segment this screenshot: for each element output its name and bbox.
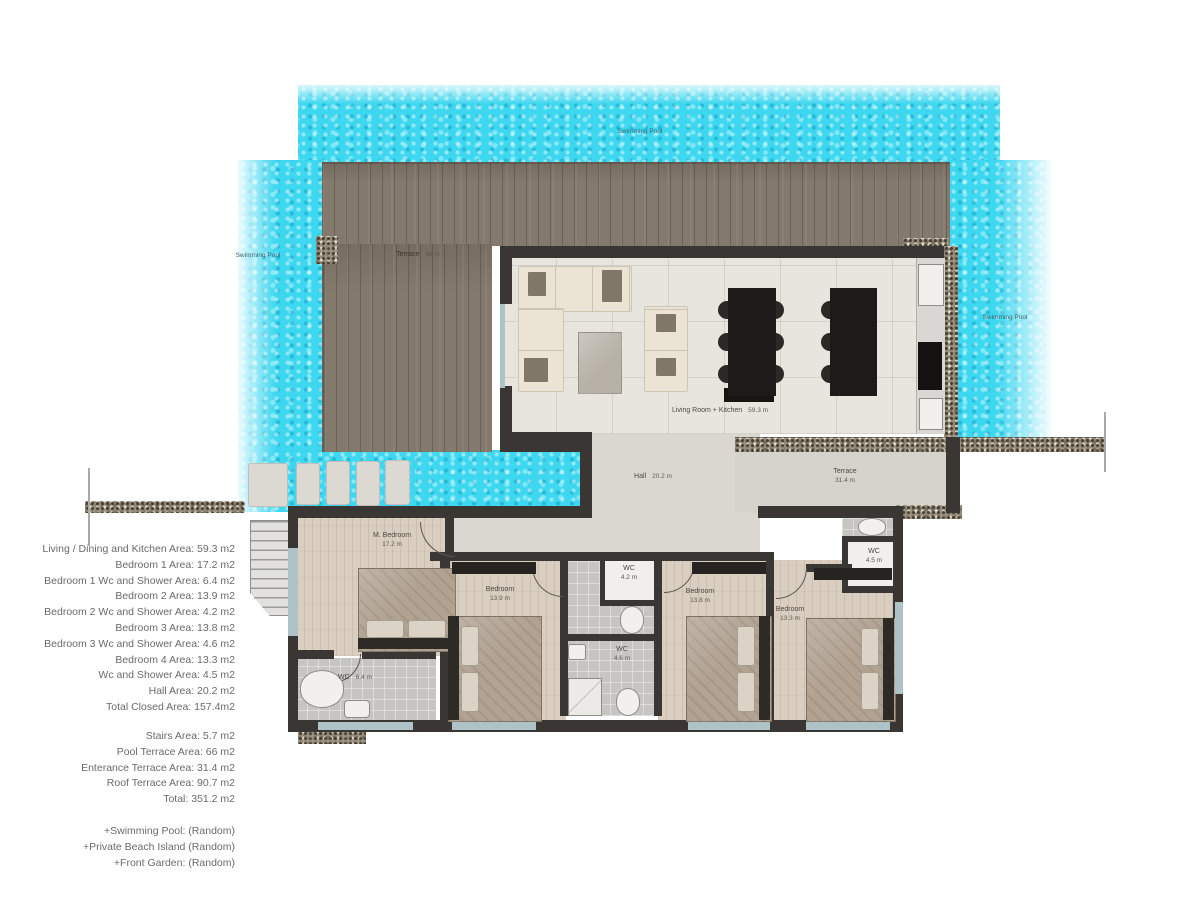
legend-line: Total Closed Area: 157.4m2 bbox=[30, 700, 235, 716]
room-name: WC bbox=[596, 646, 648, 655]
dining-table-2 bbox=[830, 288, 877, 396]
legend-line: Stairs Area: 5.7 m2 bbox=[30, 729, 235, 745]
floor-plan: Swimming Pool Swimming Pool Swimming Poo… bbox=[0, 0, 1200, 900]
label-living: Living Room + Kitchen59.3 m bbox=[640, 407, 800, 414]
toilet bbox=[620, 606, 644, 634]
wall-living-left-stub2 bbox=[500, 386, 512, 434]
room-area: 6.4 m bbox=[350, 674, 372, 681]
wall-wc-right-bottom bbox=[842, 586, 902, 593]
room-name: Hall bbox=[634, 473, 646, 480]
label-wc-master: WC6.4 m bbox=[320, 674, 390, 681]
room-name: Living Room + Kitchen bbox=[672, 407, 742, 414]
wall-wc-divider-h1 bbox=[600, 600, 658, 606]
room-name: Bedroom bbox=[748, 606, 832, 615]
legend-line: Bedroom 3 Wc and Shower Area: 4.6 m2 bbox=[30, 637, 235, 653]
wall-under-living bbox=[500, 432, 592, 452]
wall-living-left-stub bbox=[500, 246, 512, 304]
room-area: 4.5 m bbox=[848, 557, 900, 565]
label-bedroom4: Bedroom13.3 m bbox=[748, 606, 832, 623]
room-area: 59.3 m bbox=[742, 407, 768, 414]
wall-bedblock-top-right bbox=[758, 506, 903, 518]
legend-line: Hall Area: 20.2 m2 bbox=[30, 684, 235, 700]
closet-bedroom2 bbox=[452, 562, 536, 574]
pool-stepping-stone bbox=[385, 460, 410, 505]
pool-label-right: Swimming Pool bbox=[962, 314, 1048, 321]
kitchen-sink bbox=[918, 264, 944, 306]
legend-line: Pool Terrace Area: 66 m2 bbox=[30, 745, 235, 761]
sofa-shadow bbox=[602, 270, 622, 302]
sofa-shadow bbox=[528, 272, 546, 296]
room-name: WC bbox=[848, 548, 900, 557]
room-name: WC bbox=[338, 674, 350, 681]
wall-living-right-stone bbox=[944, 246, 958, 438]
room-area: 13.8 m bbox=[658, 597, 742, 605]
kitchen-stove bbox=[918, 342, 942, 390]
room-area: 4.2 m bbox=[604, 574, 654, 582]
wall-wc-divider-h2 bbox=[566, 634, 658, 641]
sink-wc-mid bbox=[568, 644, 586, 660]
label-wc-small: WC4.2 m bbox=[604, 565, 654, 582]
headboard bbox=[358, 638, 454, 649]
window-bottom bbox=[318, 722, 413, 730]
room-area: 20.2 m bbox=[646, 473, 672, 480]
legend-closed-areas: Living / Dining and Kitchen Area: 59.3 m… bbox=[30, 542, 235, 716]
pillow bbox=[861, 628, 879, 666]
room-area: 66 m bbox=[419, 251, 439, 258]
wall-bedblock-top-left bbox=[288, 506, 592, 518]
closet-bedroom3 bbox=[692, 562, 766, 574]
wall-wc-right-top bbox=[842, 536, 902, 542]
legend-line: Enterance Terrace Area: 31.4 m2 bbox=[30, 761, 235, 777]
deck-top bbox=[322, 162, 950, 246]
room-name: Bedroom bbox=[658, 588, 742, 597]
window-bottom bbox=[806, 722, 890, 730]
window-right bbox=[895, 602, 903, 694]
stone-wall-front bbox=[735, 437, 1105, 452]
stone-wall-patch bbox=[316, 236, 338, 264]
sofa-shadow bbox=[656, 314, 676, 332]
kitchen-appliance bbox=[919, 398, 943, 430]
legend-line: Bedroom 4 Area: 13.3 m2 bbox=[30, 653, 235, 669]
label-master-bedroom: M. Bedroom17.2 m bbox=[350, 532, 434, 549]
room-name: Bedroom bbox=[458, 586, 542, 595]
label-front-terrace: Terrace31.4 m bbox=[810, 468, 880, 485]
window-left bbox=[288, 548, 298, 636]
toilet bbox=[616, 688, 640, 716]
pool-right bbox=[948, 160, 1060, 442]
pillow bbox=[408, 620, 446, 638]
pool-bottom-strip bbox=[238, 450, 590, 512]
pillow bbox=[737, 672, 755, 712]
wall-master-wc-a bbox=[296, 650, 334, 659]
legend-line: Total: 351.2 m2 bbox=[30, 792, 235, 808]
legend-line: Bedroom 2 Area: 13.9 m2 bbox=[30, 589, 235, 605]
pillow bbox=[461, 626, 479, 666]
pool-stepping-stone bbox=[356, 461, 380, 506]
room-name: WC bbox=[604, 565, 654, 574]
legend-open-areas: Stairs Area: 5.7 m2Pool Terrace Area: 66… bbox=[30, 729, 235, 808]
pillow bbox=[461, 672, 479, 712]
room-area: 31.4 m bbox=[810, 477, 880, 485]
legend-line: Bedroom 2 Wc and Shower Area: 4.2 m2 bbox=[30, 605, 235, 621]
room-name: M. Bedroom bbox=[350, 532, 434, 541]
legend-extras: +Swimming Pool: (Random)+Private Beach I… bbox=[30, 824, 235, 871]
legend-line: Living / Dining and Kitchen Area: 59.3 m… bbox=[30, 542, 235, 558]
pillow bbox=[366, 620, 404, 638]
room-area: 17.2 m bbox=[350, 541, 434, 549]
legend-line: Bedroom 1 Area: 17.2 m2 bbox=[30, 558, 235, 574]
label-wc-mid: WC4.6 m bbox=[596, 646, 648, 663]
closet-bedroom4 bbox=[814, 568, 892, 580]
label-wc-right: WC4.5 m bbox=[848, 548, 900, 565]
stone-wall-left bbox=[85, 501, 245, 513]
pool-stepping-stone bbox=[296, 463, 320, 505]
pillow bbox=[737, 626, 755, 666]
coffee-table bbox=[578, 332, 622, 394]
label-hall: Hall20.2 m bbox=[618, 473, 688, 480]
room-area: 13.9 m bbox=[458, 595, 542, 603]
sofa-shadow bbox=[524, 358, 548, 382]
legend-line: +Swimming Pool: (Random) bbox=[30, 824, 235, 840]
room-area: 4.6 m bbox=[596, 655, 648, 663]
pool-label-left: Swimming Pool bbox=[215, 252, 301, 259]
shower bbox=[568, 678, 602, 716]
room-name: Terrace bbox=[396, 251, 419, 258]
legend-line: +Front Garden: (Random) bbox=[30, 856, 235, 872]
pillow bbox=[861, 672, 879, 710]
pool-stepping-stone bbox=[248, 463, 288, 507]
pool-stepping-stone bbox=[326, 461, 350, 505]
room-name: Terrace bbox=[810, 468, 880, 477]
deck-left bbox=[322, 244, 492, 452]
wall-living-top bbox=[500, 246, 948, 258]
sink-master-wc bbox=[344, 700, 370, 718]
dining-table-1 bbox=[728, 288, 776, 396]
label-bedroom3: Bedroom13.8 m bbox=[658, 588, 742, 605]
sofa-shadow bbox=[656, 358, 676, 376]
headboard bbox=[759, 616, 770, 720]
pool-label-text: Swimming Pool bbox=[236, 252, 281, 259]
legend-line: Wc and Shower Area: 4.5 m2 bbox=[30, 668, 235, 684]
pool-top bbox=[298, 85, 1000, 165]
boundary-marker-right bbox=[1104, 412, 1106, 472]
pool-label-text: Swimming Pool bbox=[618, 128, 663, 135]
legend-line: +Private Beach Island (Random) bbox=[30, 840, 235, 856]
window-living-left bbox=[500, 304, 505, 388]
boundary-marker-left bbox=[88, 468, 90, 546]
pool-label-text: Swimming Pool bbox=[983, 314, 1028, 321]
label-pool-terrace: Terrace66 m bbox=[358, 251, 478, 258]
legend-line: Bedroom 1 Wc and Shower Area: 6.4 m2 bbox=[30, 574, 235, 590]
wall-terrace-right bbox=[946, 437, 960, 513]
room-area: 13.3 m bbox=[748, 615, 832, 623]
headboard bbox=[448, 616, 459, 720]
label-bedroom2: Bedroom13.9 m bbox=[458, 586, 542, 603]
headboard bbox=[883, 618, 894, 720]
legend-line: Roof Terrace Area: 90.7 m2 bbox=[30, 776, 235, 792]
pool-label-top: Swimming Pool bbox=[595, 128, 685, 135]
window-bottom bbox=[452, 722, 536, 730]
window-bottom bbox=[688, 722, 770, 730]
legend-line: Bedroom 3 Area: 13.8 m2 bbox=[30, 621, 235, 637]
sink-wc-right bbox=[858, 518, 886, 536]
